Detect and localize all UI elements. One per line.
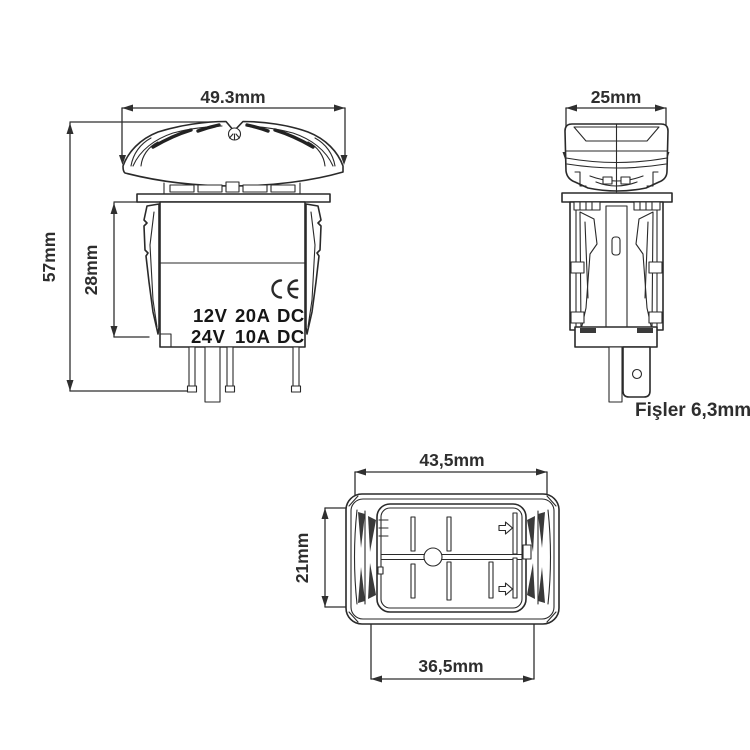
terminal-pin: [293, 347, 299, 387]
arrowhead: [536, 469, 547, 476]
prong-seat: [580, 328, 596, 333]
contact-slot: [489, 562, 493, 598]
arrowhead: [566, 105, 577, 112]
arrowhead: [322, 508, 329, 519]
neck-segment: [170, 185, 194, 192]
mounting-flange-front: [137, 194, 330, 202]
neck-segment: [243, 185, 267, 192]
center-post-slot: [612, 237, 620, 255]
arrowhead: [67, 380, 74, 391]
dim-outer-width-label: 43,5mm: [419, 450, 484, 470]
side-ledge: [649, 262, 662, 273]
contact-slot: [411, 564, 415, 598]
arrowhead: [334, 105, 345, 112]
arrowhead: [111, 326, 118, 337]
side-ledge: [571, 262, 584, 273]
terminal-size-note: Fişler 6,3mm: [635, 400, 750, 421]
arrowhead: [67, 123, 74, 134]
bottom-view: 43,5mm 21mm 36,5mm: [292, 450, 559, 683]
blade-terminal-side: [609, 347, 650, 402]
rocker-actuator-side: [565, 124, 668, 192]
rating-type-1: DC: [277, 305, 305, 326]
ratings-label: 12V 20A DC 24V 10A DC: [191, 305, 305, 347]
top-ledge: [634, 202, 660, 210]
rating-current-2: 10A: [235, 326, 270, 347]
terminal-pin-tip: [226, 386, 235, 392]
dim-front-body-height: 28mm: [81, 202, 149, 337]
side-ledge: [649, 312, 662, 323]
side-ledge: [571, 312, 584, 323]
dim-side-width-label: 25mm: [591, 87, 642, 107]
rocker-switch-dimensional-drawing: 49.3mm 57mm 28mm: [0, 0, 750, 750]
mounting-flange-side: [562, 193, 672, 202]
terminal-pin: [189, 347, 195, 387]
terminal-pins-front: [188, 347, 301, 402]
side-tab: [523, 545, 531, 559]
rating-voltage-2: 24V: [191, 326, 226, 347]
arrowhead: [371, 676, 382, 683]
dim-front-width-label: 49.3mm: [200, 87, 265, 107]
extension-line: [355, 472, 547, 495]
dim-total-height-label: 57mm: [39, 232, 59, 283]
rating-voltage-1: 12V: [193, 305, 228, 326]
arrowhead: [355, 469, 366, 476]
side-tab: [378, 567, 383, 574]
dim-bottom-outer-width: 43,5mm: [355, 450, 547, 495]
neck-segment: [603, 177, 612, 184]
side-view: 25mm: [562, 87, 750, 421]
extension-line: [114, 202, 149, 337]
neck-center-tab: [226, 182, 239, 192]
contact-slot: [447, 562, 451, 600]
center-pivot: [424, 548, 442, 566]
rating-type-2: DC: [277, 326, 305, 347]
dim-body-height-label: 28mm: [81, 245, 101, 296]
dim-height-label: 21mm: [292, 533, 312, 584]
neck-segment: [621, 177, 630, 184]
arrowhead: [655, 105, 666, 112]
rating-current-1: 20A: [235, 305, 270, 326]
blade-hole: [633, 370, 642, 379]
neck-segment: [198, 185, 222, 192]
switch-housing-side: [570, 202, 663, 347]
terminal-pin: [227, 347, 233, 387]
prong-seat: [637, 328, 653, 333]
diagram-canvas: 49.3mm 57mm 28mm: [0, 0, 750, 750]
arrowhead: [122, 105, 133, 112]
blade-shank: [609, 347, 622, 402]
front-view: 49.3mm 57mm 28mm: [39, 87, 348, 402]
top-ledge: [574, 202, 600, 210]
neck-segment: [271, 185, 295, 192]
center-post: [606, 206, 627, 327]
arrowhead: [322, 596, 329, 607]
arrowhead: [111, 203, 118, 214]
contact-slot: [513, 513, 517, 554]
dim-inner-width-label: 36,5mm: [418, 656, 483, 676]
arrowhead: [523, 676, 534, 683]
terminal-pin-wide: [205, 347, 220, 402]
switch-body-bottom: [377, 504, 531, 612]
terminal-pin-tip: [188, 386, 197, 392]
contact-slot: [513, 558, 517, 598]
dim-bottom-height: 21mm: [292, 508, 351, 607]
rocker-actuator-front: [123, 122, 343, 187]
terminal-pin-tip: [292, 386, 301, 392]
contact-slot: [447, 517, 451, 551]
contact-slot: [411, 517, 415, 551]
